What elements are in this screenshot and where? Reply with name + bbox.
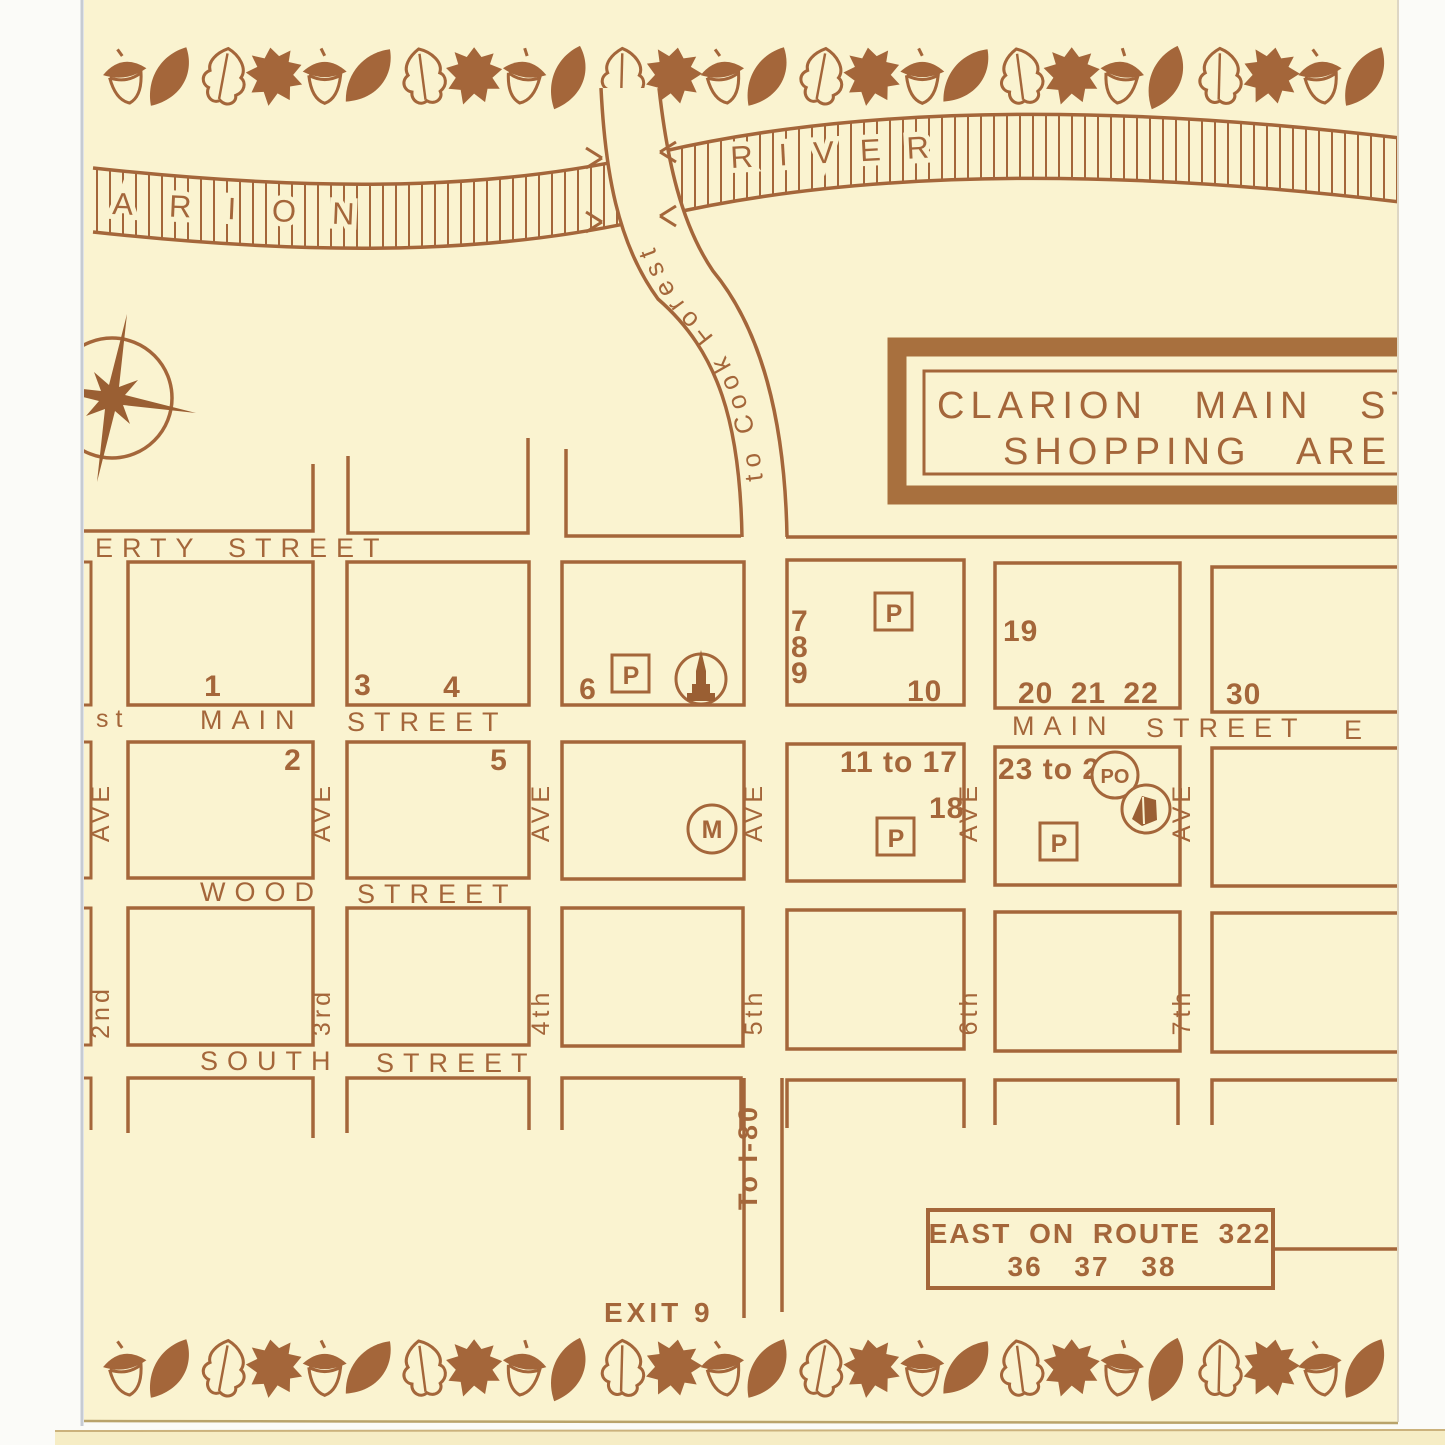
block-number-18: 18 xyxy=(929,792,964,825)
block-number-5: 5 xyxy=(490,744,508,777)
third-ave-label: 3rd xyxy=(308,988,336,1036)
south-street-label: SOUTH xyxy=(200,1046,340,1076)
block-number-9: 9 xyxy=(791,657,809,690)
title-line1: CLARION MAIN ST xyxy=(937,385,1421,427)
under-page-edge xyxy=(55,1430,1445,1431)
main-street-west-label: MAIN xyxy=(200,705,304,735)
ave-label: AVE xyxy=(740,782,768,842)
block-number-30: 30 xyxy=(1226,678,1261,711)
wood-street-label: WOOD xyxy=(200,877,323,907)
title-line2: SHOPPING ARE xyxy=(1003,431,1392,473)
under-page-sliver xyxy=(55,1431,1445,1445)
route-322-line2: 36 37 38 xyxy=(1008,1251,1177,1282)
i80-road-label: To I-80 xyxy=(733,1104,763,1210)
scanned-map-page: ARION RIVER to Cook Forest CLARION MAIN … xyxy=(0,0,1445,1445)
svg-text:M: M xyxy=(702,816,723,844)
m-marker: M xyxy=(688,805,736,853)
fifth-ave-label: 5th xyxy=(740,989,768,1036)
ave-label: AVE xyxy=(1168,782,1196,842)
ave-label: AVE xyxy=(527,782,555,842)
first-street-partial-label: st xyxy=(96,705,129,733)
block-number-2: 2 xyxy=(284,744,302,777)
svg-text:P: P xyxy=(888,825,905,853)
second-ave-label: 2nd xyxy=(87,985,115,1039)
ave-label: AVE xyxy=(308,782,336,842)
south-street-word: STREET xyxy=(376,1048,537,1078)
fourth-ave-label: 4th xyxy=(527,989,555,1036)
main-street-west-word: STREET xyxy=(347,707,508,737)
main-street-east-partial: E xyxy=(1344,715,1371,745)
main-street-east-label: MAIN xyxy=(1012,711,1116,741)
wood-street-word: STREET xyxy=(357,879,518,909)
sixth-ave-label: 6th xyxy=(955,989,983,1036)
liberty-street-word: STREET xyxy=(228,533,389,563)
clarion-map-svg: ARION RIVER to Cook Forest CLARION MAIN … xyxy=(0,0,1445,1445)
block-number-10: 10 xyxy=(907,675,942,708)
exit-9-label: EXIT 9 xyxy=(604,1297,714,1328)
block-number-20-22: 20 21 22 xyxy=(1018,677,1159,710)
seventh-ave-label: 7th xyxy=(1168,989,1196,1036)
block-number-19: 19 xyxy=(1003,615,1038,648)
liberty-street-label: ERTY xyxy=(95,533,203,563)
book-icon xyxy=(1122,785,1170,833)
svg-text:P: P xyxy=(886,600,903,628)
block-number-3: 3 xyxy=(354,669,372,702)
block-number-1: 1 xyxy=(204,670,222,703)
svg-text:P: P xyxy=(623,662,640,690)
svg-text:P: P xyxy=(1051,830,1068,858)
block-number-6: 6 xyxy=(579,673,597,706)
block-number-4: 4 xyxy=(443,671,461,704)
route-322-line1: EAST ON ROUTE 322 xyxy=(929,1218,1272,1249)
svg-text:PO: PO xyxy=(1101,766,1130,788)
block-number-11-17: 11 to 17 xyxy=(840,746,958,779)
main-street-east-word: STREET xyxy=(1146,713,1307,743)
ave-label: AVE xyxy=(87,782,115,842)
